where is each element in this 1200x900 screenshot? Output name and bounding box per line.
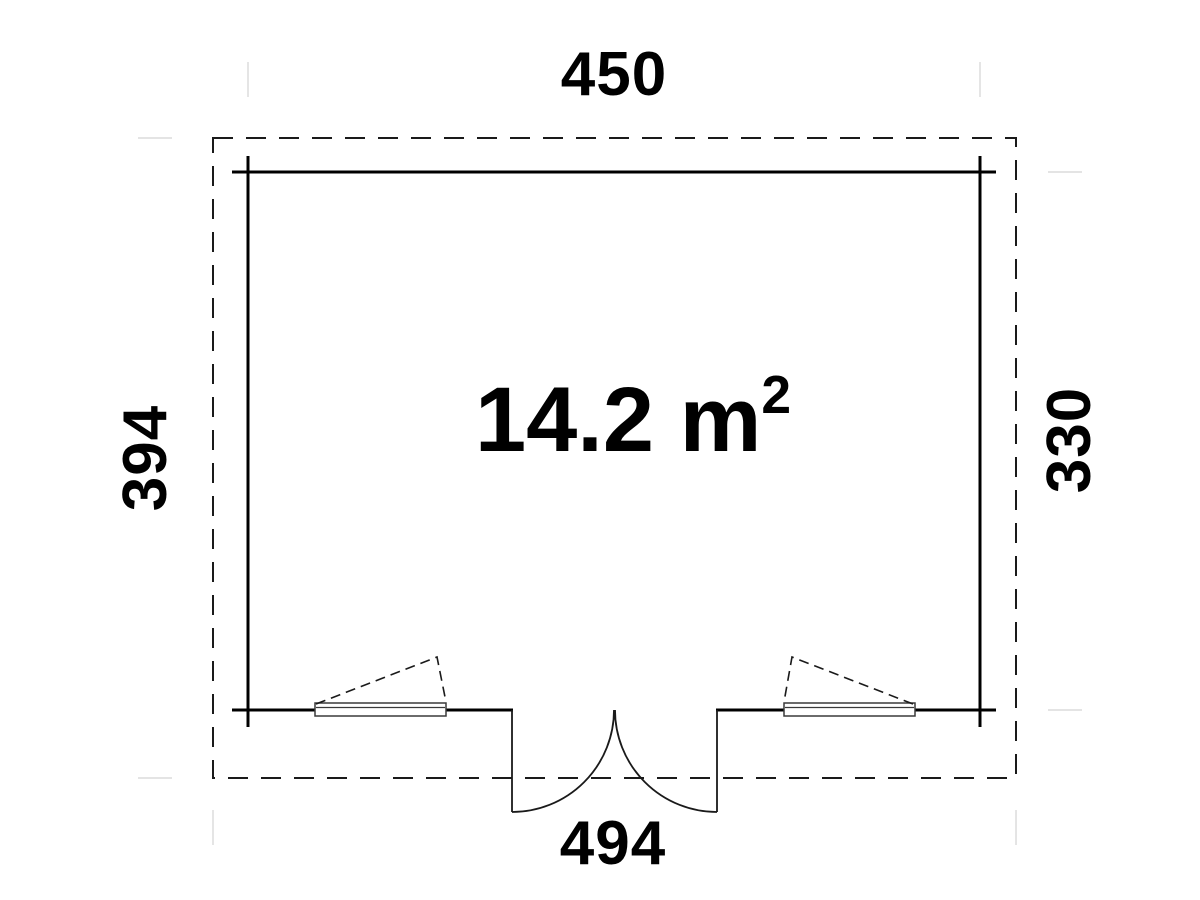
floor-area-superscript: 2 <box>761 366 791 425</box>
door-right-swing-arc <box>615 710 717 812</box>
dimension-depth-right: 330 <box>1039 387 1101 493</box>
window-left-frame <box>315 703 446 716</box>
double-door-symbol <box>512 710 717 812</box>
window-right-symbol <box>784 657 915 716</box>
door-left-swing-arc <box>512 710 614 812</box>
floor-area-label: 14.2 m2 <box>475 374 791 466</box>
floor-plan-page: 450 494 394 330 14.2 m2 <box>0 0 1200 900</box>
dimension-width-bottom: 494 <box>560 813 666 875</box>
floor-area-value: 14.2 m <box>475 369 761 471</box>
dimension-width-top: 450 <box>561 44 667 106</box>
window-left-symbol <box>315 657 446 716</box>
window-right-frame <box>784 703 915 716</box>
window-left-opening-dashes <box>316 657 446 704</box>
dimension-depth-left: 394 <box>115 405 177 511</box>
window-right-opening-dashes <box>784 657 913 704</box>
